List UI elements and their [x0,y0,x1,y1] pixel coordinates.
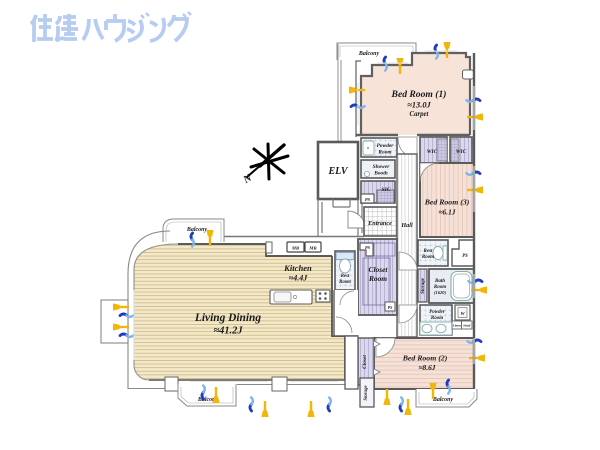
svg-text:WIC: WIC [427,149,438,155]
svg-text:Room: Room [368,274,387,283]
svg-text:Shower: Shower [373,164,391,170]
svg-text:Carpet: Carpet [410,111,430,118]
svg-text:Room: Room [377,150,391,156]
svg-text:≈4.4J: ≈4.4J [289,274,308,283]
svg-text:Balcony: Balcony [432,397,454,403]
svg-text:WIC: WIC [456,149,467,155]
svg-text:Rest: Rest [424,249,434,254]
svg-text:Closet: Closet [369,265,389,274]
svg-text:Hall: Hall [400,222,413,229]
svg-text:PS: PS [462,254,468,259]
svg-text:Powder: Powder [429,310,445,315]
svg-text:Powder: Powder [377,143,395,149]
svg-text:Room: Room [422,255,434,260]
svg-text:Room: Room [339,280,351,285]
svg-text:MB: MB [291,246,299,251]
svg-text:Bed Room (1): Bed Room (1) [391,89,447,100]
svg-text:Entrance: Entrance [367,220,392,227]
svg-text:Storage: Storage [421,277,426,294]
svg-text:≈8.6J: ≈8.6J [419,363,436,372]
svg-text:(1620): (1620) [434,290,447,295]
svg-text:≈41.2J: ≈41.2J [213,326,243,337]
svg-text:PS: PS [365,197,371,202]
svg-text:Booth: Booth [373,171,387,177]
svg-text:Balcony: Balcony [186,227,208,233]
svg-text:Bed Room (3): Bed Room (3) [424,198,470,207]
svg-text:ELV: ELV [327,166,348,177]
svg-text:MB: MB [308,246,316,251]
svg-text:Living Dining: Living Dining [194,312,261,324]
svg-text:Bath: Bath [434,279,445,284]
svg-text:Linen: Linen [452,324,461,328]
svg-text:Room: Room [431,316,443,321]
svg-text:≈13.0J: ≈13.0J [407,101,431,110]
svg-text:PS: PS [365,245,371,250]
svg-text:Bed Room (2): Bed Room (2) [402,354,448,363]
svg-text:Shelf: Shelf [463,324,471,328]
svg-text:N: N [241,172,254,186]
svg-text:Rest: Rest [341,274,350,279]
svg-text:SIC: SIC [381,187,390,193]
svg-text:≈6.1J: ≈6.1J [439,208,456,217]
svg-text:PS: PS [388,305,393,310]
svg-text:Kitchen: Kitchen [283,263,312,273]
svg-text:Closet: Closet [362,355,368,369]
svg-text:Balcony: Balcony [358,51,380,57]
svg-text:Storage: Storage [364,385,369,401]
